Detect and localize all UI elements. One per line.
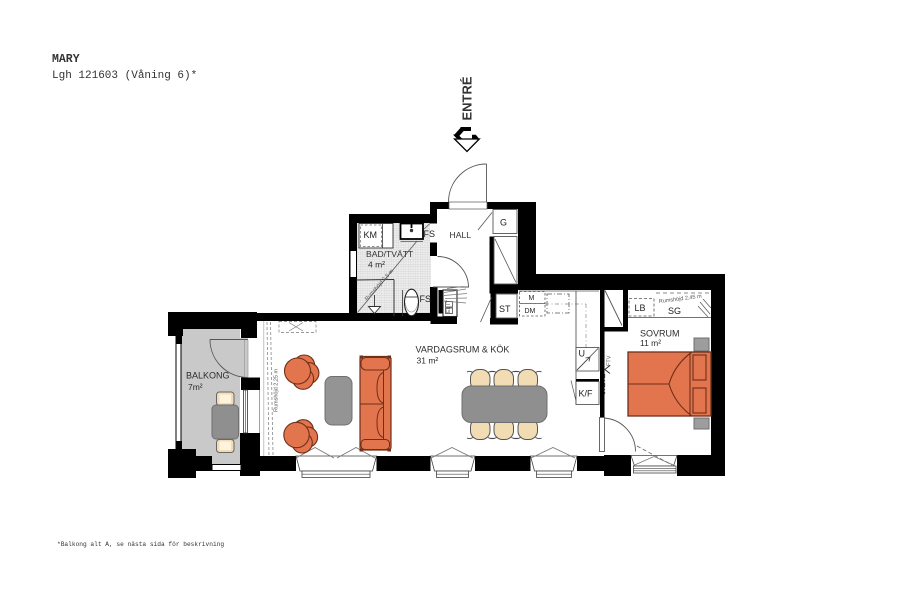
svg-text:ENTRÉ: ENTRÉ (460, 76, 475, 120)
svg-text:Rumshöjd 2,25 m: Rumshöjd 2,25 m (274, 368, 280, 412)
svg-text:4 m²: 4 m² (368, 259, 385, 269)
svg-text:K/F: K/F (579, 389, 594, 399)
svg-text:G: G (500, 218, 507, 228)
svg-text:FS: FS (424, 229, 436, 239)
svg-text:FS: FS (420, 294, 432, 304)
svg-text:MARY: MARY (52, 53, 80, 66)
svg-text:FTV: FTV (607, 355, 613, 366)
svg-text:11 m²: 11 m² (640, 338, 661, 348)
svg-text:SG: SG (668, 306, 681, 316)
svg-text:VARDAGSRUM & KÖK: VARDAGSRUM & KÖK (416, 344, 510, 354)
svg-text:31 m²: 31 m² (417, 356, 439, 366)
svg-text:Lgh 121603 (Våning 6)*: Lgh 121603 (Våning 6)* (52, 69, 197, 82)
svg-text:KM: KM (364, 230, 378, 240)
svg-text:M: M (529, 295, 535, 302)
svg-text:EL IT: EL IT (446, 299, 452, 313)
svg-text:DM: DM (525, 308, 536, 315)
svg-text:7m²: 7m² (188, 382, 203, 392)
svg-text:BALKONG: BALKONG (186, 371, 230, 381)
svg-text:BAD/TVÄTT: BAD/TVÄTT (366, 249, 414, 259)
svg-text:U: U (579, 349, 586, 359)
svg-text:HALL: HALL (450, 230, 472, 240)
svg-text:ST: ST (499, 304, 511, 314)
svg-text:*Balkong alt A, se nästa sida: *Balkong alt A, se nästa sida för beskri… (57, 541, 224, 548)
svg-text:LB: LB (635, 303, 646, 313)
